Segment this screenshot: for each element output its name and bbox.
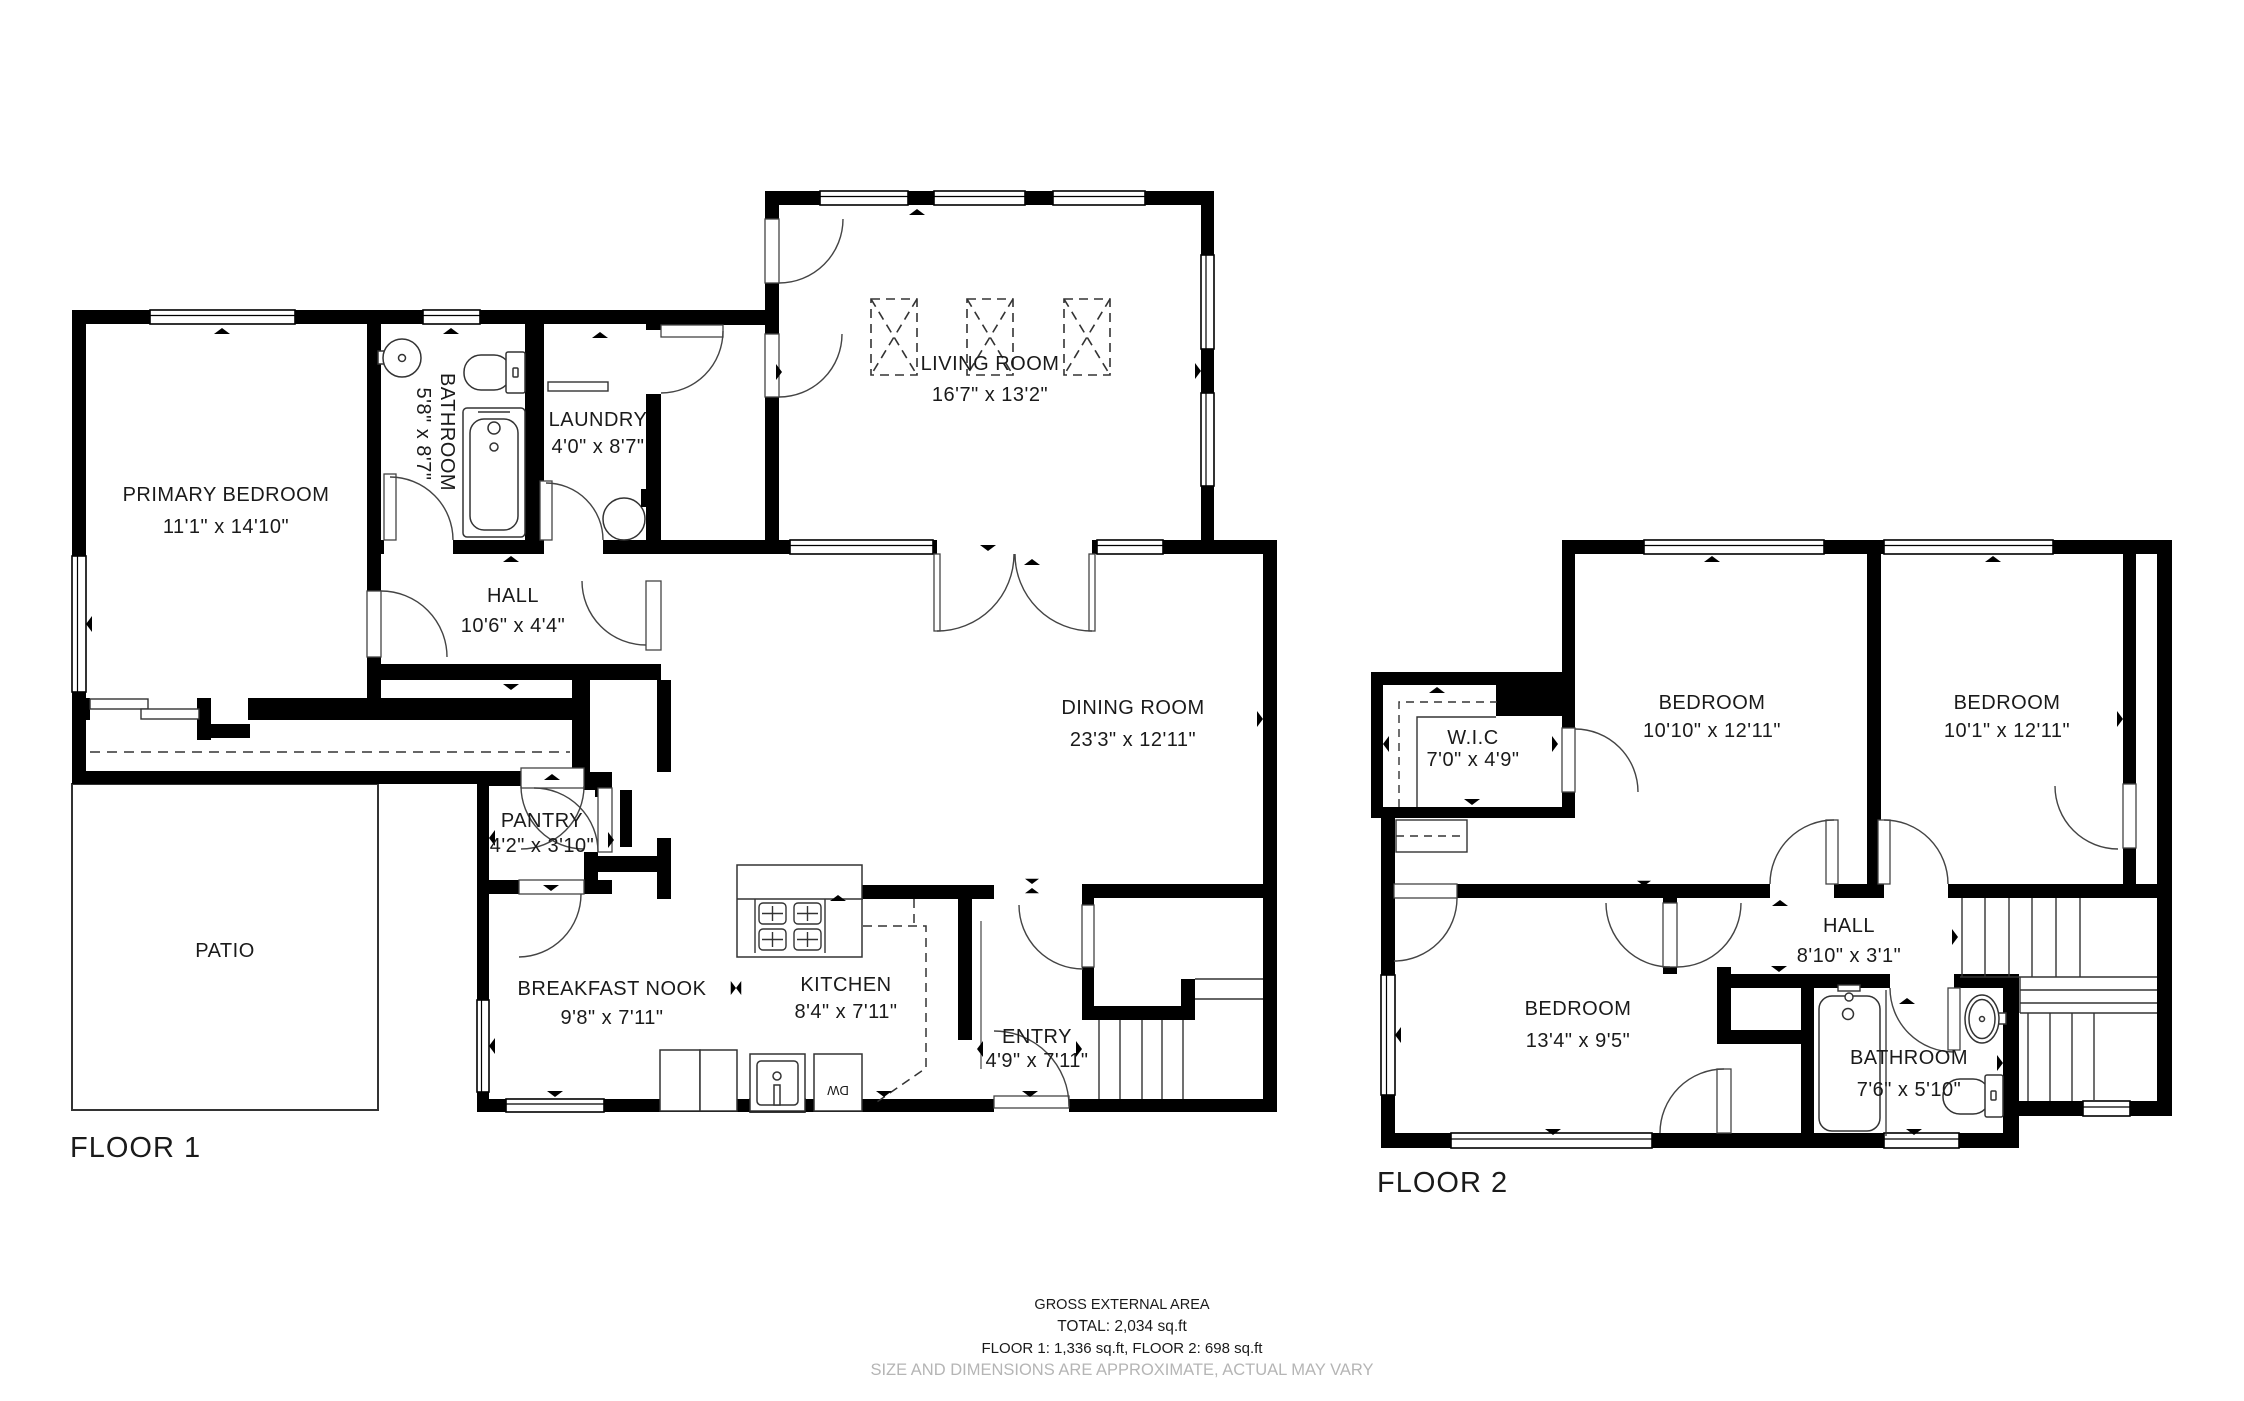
svg-text:9'8" x 7'11": 9'8" x 7'11" [560,1007,663,1029]
svg-text:PATIO: PATIO [195,940,255,962]
svg-text:HALL: HALL [487,585,539,607]
svg-text:10'1" x 12'11": 10'1" x 12'11" [1944,720,2070,742]
svg-text:BEDROOM: BEDROOM [1659,692,1766,714]
svg-text:10'6" x 4'4": 10'6" x 4'4" [461,615,566,637]
svg-text:BEDROOM: BEDROOM [1954,692,2061,714]
svg-text:FLOOR 2: FLOOR 2 [1377,1167,1508,1199]
svg-text:4'0" x 8'7": 4'0" x 8'7" [552,436,645,458]
svg-text:5'8" x 8'7": 5'8" x 8'7" [412,388,434,481]
svg-text:23'3" x 12'11": 23'3" x 12'11" [1070,729,1196,751]
svg-text:LAUNDRY: LAUNDRY [549,409,648,431]
svg-text:7'0" x 4'9": 7'0" x 4'9" [1427,749,1520,771]
svg-text:11'1" x 14'10": 11'1" x 14'10" [163,516,289,538]
svg-text:13'4" x 9'5": 13'4" x 9'5" [1526,1030,1631,1052]
svg-text:8'4" x 7'11": 8'4" x 7'11" [794,1001,897,1023]
svg-text:DW: DW [826,1083,848,1098]
svg-text:GROSS EXTERNAL AREA: GROSS EXTERNAL AREA [1034,1297,1209,1313]
svg-text:LIVING ROOM: LIVING ROOM [921,353,1060,375]
svg-text:ENTRY: ENTRY [1002,1026,1072,1048]
svg-text:FLOOR 1: 1,336 sq.ft, FLOOR 2:: FLOOR 1: 1,336 sq.ft, FLOOR 2: 698 sq.ft [982,1340,1264,1357]
svg-text:BATHROOM: BATHROOM [1850,1047,1968,1069]
svg-text:4'2" x 3'10": 4'2" x 3'10" [490,835,595,857]
svg-text:BATHROOM: BATHROOM [436,373,458,491]
svg-text:PRIMARY BEDROOM: PRIMARY BEDROOM [123,484,330,506]
svg-text:16'7" x 13'2": 16'7" x 13'2" [932,384,1048,406]
svg-text:BEDROOM: BEDROOM [1525,998,1632,1020]
svg-text:KITCHEN: KITCHEN [800,974,891,996]
svg-text:PANTRY: PANTRY [501,810,583,832]
svg-text:4'9" x 7'11": 4'9" x 7'11" [985,1050,1088,1072]
svg-text:FLOOR 1: FLOOR 1 [70,1132,201,1164]
svg-text:7'6" x 5'10": 7'6" x 5'10" [1857,1079,1962,1101]
svg-text:TOTAL: 2,034 sq.ft: TOTAL: 2,034 sq.ft [1057,1318,1187,1335]
svg-text:DINING ROOM: DINING ROOM [1061,697,1204,719]
svg-text:SIZE AND DIMENSIONS ARE APPROX: SIZE AND DIMENSIONS ARE APPROXIMATE, ACT… [870,1361,1373,1379]
svg-text:8'10" x 3'1": 8'10" x 3'1" [1797,945,1902,967]
svg-text:HALL: HALL [1823,915,1875,937]
svg-text:10'10" x 12'11": 10'10" x 12'11" [1643,720,1781,742]
svg-text:BREAKFAST NOOK: BREAKFAST NOOK [518,978,707,1000]
svg-text:W.I.C: W.I.C [1447,727,1498,749]
